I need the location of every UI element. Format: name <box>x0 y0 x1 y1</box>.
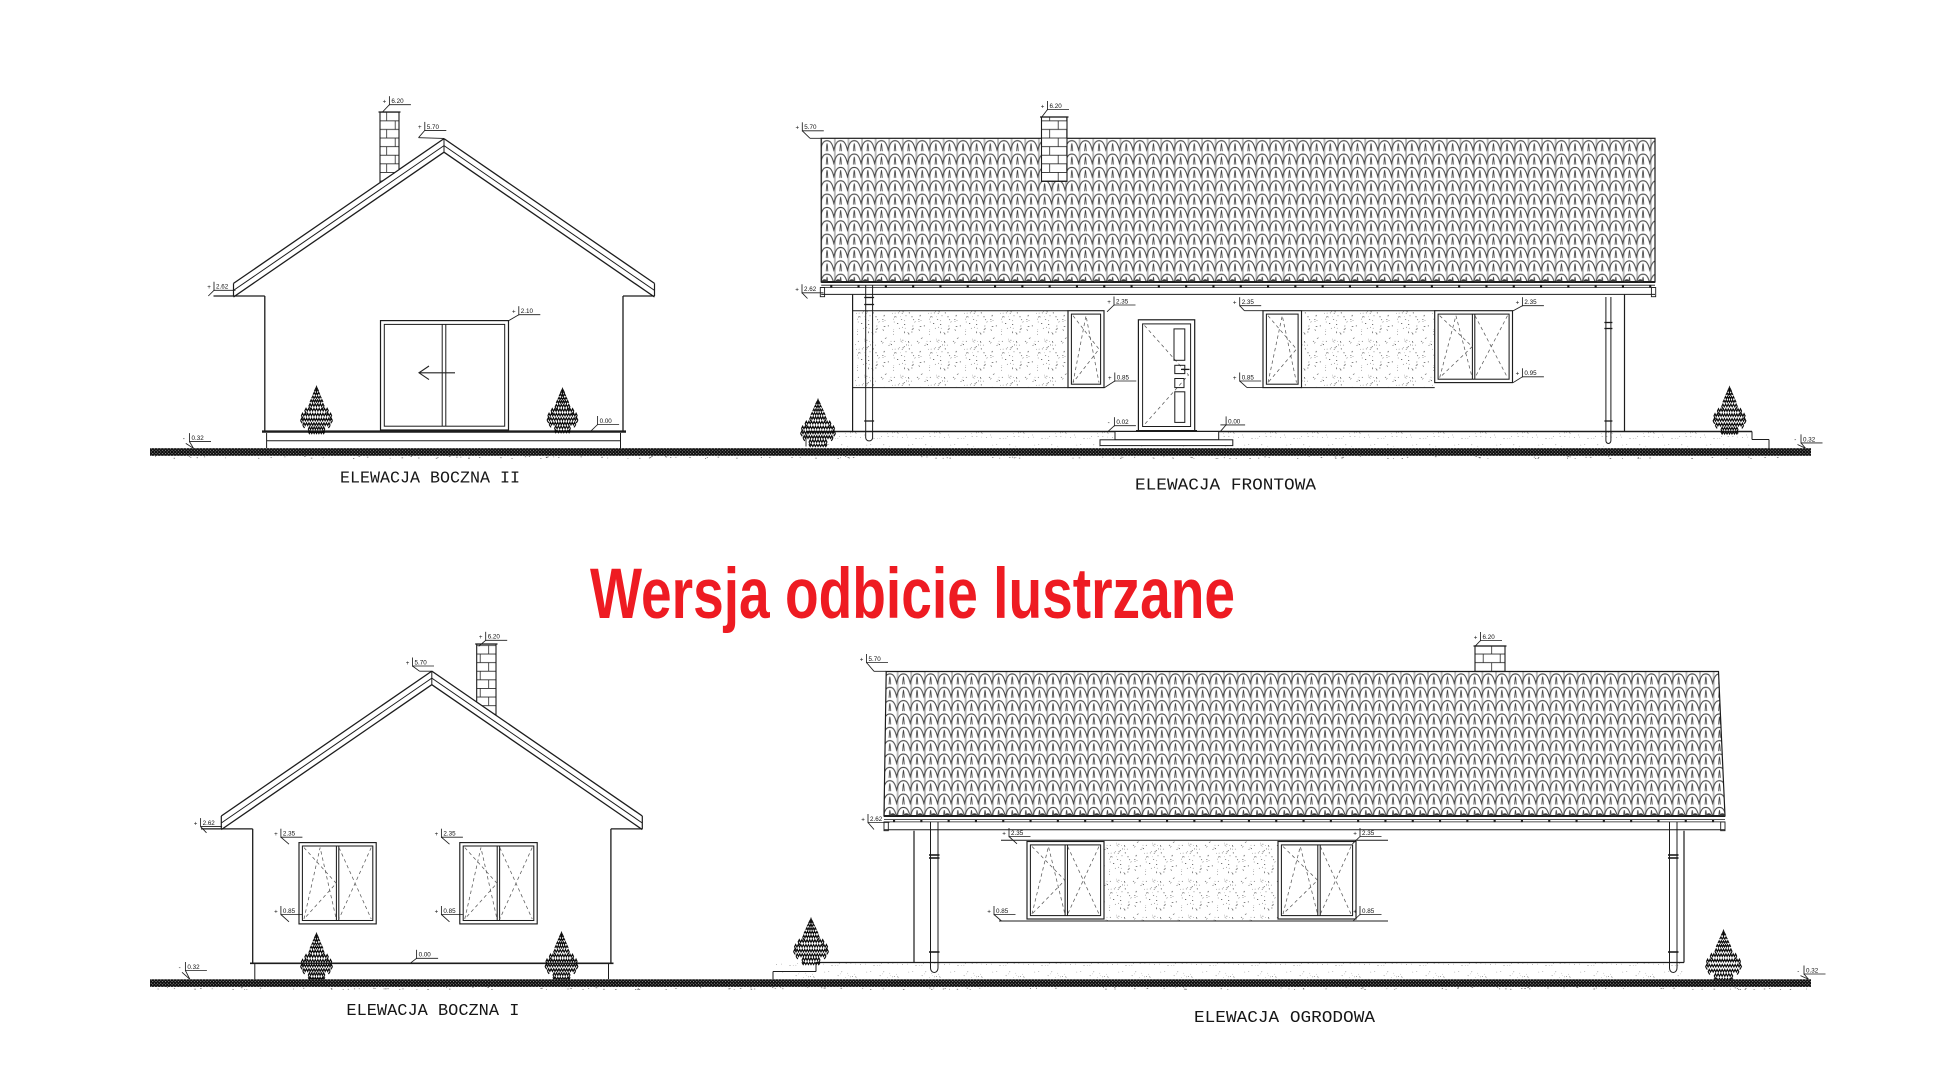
svg-text:+: + <box>1233 375 1237 382</box>
svg-text:+: + <box>479 634 483 641</box>
svg-text:6.20: 6.20 <box>1483 634 1496 641</box>
svg-text:0.32: 0.32 <box>1806 967 1819 974</box>
svg-text:+: + <box>274 831 278 838</box>
svg-text:2.62: 2.62 <box>870 816 883 823</box>
svg-text:2.35: 2.35 <box>1116 298 1129 305</box>
svg-text:+: + <box>1516 371 1520 378</box>
svg-text:2.35: 2.35 <box>283 831 296 838</box>
svg-text:5.70: 5.70 <box>415 659 428 666</box>
svg-text:+: + <box>1516 300 1520 307</box>
svg-text:0.02: 0.02 <box>1116 419 1129 426</box>
svg-text:0.00: 0.00 <box>1228 418 1241 425</box>
svg-text:-: - <box>179 964 181 971</box>
svg-text:0.85: 0.85 <box>1117 374 1130 381</box>
svg-text:+: + <box>1353 830 1357 837</box>
svg-text:+: + <box>418 124 422 131</box>
svg-text:2.35: 2.35 <box>443 831 456 838</box>
svg-text:+: + <box>987 908 991 915</box>
svg-text:-: - <box>183 435 185 442</box>
svg-text:0.85: 0.85 <box>1362 908 1375 915</box>
svg-text:-: - <box>1108 420 1110 427</box>
svg-text:0.32: 0.32 <box>192 435 205 442</box>
svg-text:6.20: 6.20 <box>488 634 501 641</box>
svg-text:2.62: 2.62 <box>216 284 229 291</box>
svg-text:+: + <box>795 287 799 294</box>
svg-text:+: + <box>435 831 439 838</box>
svg-text:+: + <box>1108 375 1112 382</box>
svg-text:0.85: 0.85 <box>996 908 1009 915</box>
svg-text:+: + <box>194 820 198 827</box>
svg-text:0.00: 0.00 <box>419 952 432 959</box>
svg-text:+: + <box>861 816 865 823</box>
svg-text:2.62: 2.62 <box>203 820 216 827</box>
svg-text:0.85: 0.85 <box>443 908 456 915</box>
svg-text:Wersja odbicie lustrzane: Wersja odbicie lustrzane <box>590 555 1235 634</box>
svg-text:+: + <box>1353 908 1357 915</box>
svg-text:2.10: 2.10 <box>521 308 534 315</box>
svg-text:-: - <box>1797 968 1799 975</box>
svg-text:0.32: 0.32 <box>187 964 200 971</box>
svg-text:ELEWACJA BOCZNA I: ELEWACJA BOCZNA I <box>346 1002 519 1021</box>
svg-text:5.70: 5.70 <box>804 124 817 131</box>
svg-text:+: + <box>1107 299 1111 306</box>
svg-text:2.35: 2.35 <box>1362 830 1375 837</box>
svg-text:-: - <box>1794 437 1796 444</box>
svg-text:5.70: 5.70 <box>869 656 882 663</box>
svg-text:+: + <box>512 309 516 316</box>
svg-text:+: + <box>207 284 211 291</box>
svg-text:+: + <box>1474 634 1478 641</box>
svg-text:0.95: 0.95 <box>1524 370 1537 377</box>
svg-text:ELEWACJA OGRODOWA: ELEWACJA OGRODOWA <box>1194 1009 1376 1028</box>
svg-text:2.35: 2.35 <box>1242 299 1255 306</box>
svg-text:+: + <box>1233 300 1237 307</box>
svg-text:ELEWACJA BOCZNA II: ELEWACJA BOCZNA II <box>340 469 520 488</box>
svg-text:6.20: 6.20 <box>391 98 404 105</box>
svg-text:+: + <box>796 125 800 132</box>
svg-text:2.35: 2.35 <box>1011 830 1024 837</box>
svg-text:+: + <box>406 660 410 667</box>
svg-text:2.62: 2.62 <box>804 286 817 293</box>
svg-text:+: + <box>1002 830 1006 837</box>
svg-text:2.35: 2.35 <box>1524 299 1537 306</box>
svg-text:+: + <box>435 908 439 915</box>
svg-text:ELEWACJA FRONTOWA: ELEWACJA FRONTOWA <box>1135 477 1317 496</box>
svg-text:0.00: 0.00 <box>600 418 613 425</box>
svg-text:0.85: 0.85 <box>1242 374 1255 381</box>
svg-text:0.32: 0.32 <box>1803 436 1816 443</box>
svg-text:5.70: 5.70 <box>427 124 440 131</box>
svg-text:+: + <box>383 99 387 106</box>
svg-text:+: + <box>274 908 278 915</box>
svg-text:0.85: 0.85 <box>283 908 296 915</box>
svg-text:+: + <box>860 656 864 663</box>
svg-text:6.20: 6.20 <box>1050 103 1063 110</box>
svg-text:+: + <box>1041 103 1045 110</box>
